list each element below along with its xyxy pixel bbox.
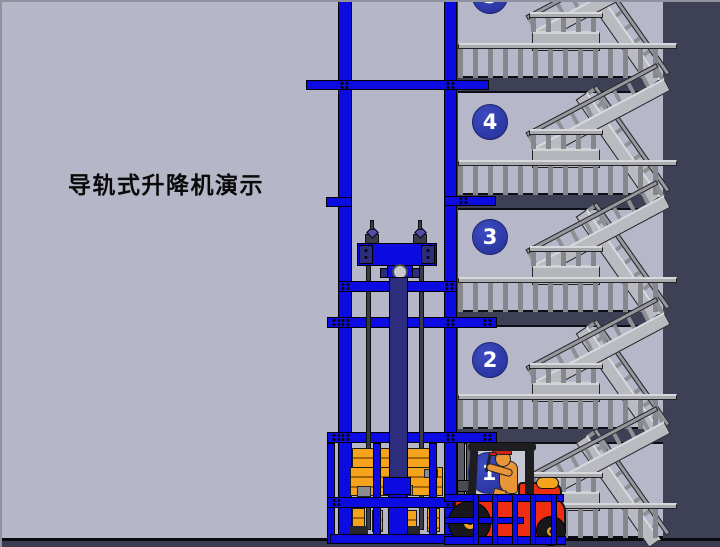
frame-left-edge	[0, 0, 2, 547]
forklift: 1	[440, 428, 595, 547]
piston-collar	[383, 477, 411, 495]
floor-badge-2[interactable]: 2	[472, 342, 508, 378]
floor-number: 2	[483, 348, 498, 372]
floor-number: 3	[483, 225, 498, 249]
mast-beam-stub-left	[326, 197, 352, 207]
platform-cage-bar	[429, 443, 437, 539]
hydraulic-piston	[389, 277, 408, 482]
floor-badge-4[interactable]: 4	[472, 104, 508, 140]
platform-edge-left	[327, 443, 335, 544]
frame-top-edge	[0, 0, 720, 2]
staircase-floor-5	[0, 0, 720, 78]
floor-number: 4	[483, 110, 498, 134]
floor-badge-3[interactable]: 3	[472, 219, 508, 255]
platform-cage-bar	[373, 443, 381, 539]
driver-cap-brim	[489, 452, 497, 456]
mast-beam-mid	[327, 317, 497, 328]
lift-demo-scene: 5 4 3 2	[0, 0, 720, 547]
rear-wheel-hub	[546, 526, 557, 537]
overhead-guard-rear-post	[525, 449, 534, 498]
front-wheel-hub	[463, 516, 477, 530]
mast-beam-stub-right	[444, 196, 496, 206]
mast-beam-top	[306, 80, 489, 90]
forklift-tank	[536, 477, 559, 489]
cargo-label-patch	[357, 486, 371, 497]
page-title: 导轨式升降机演示	[68, 166, 264, 200]
staircase-floor-2	[0, 319, 720, 429]
